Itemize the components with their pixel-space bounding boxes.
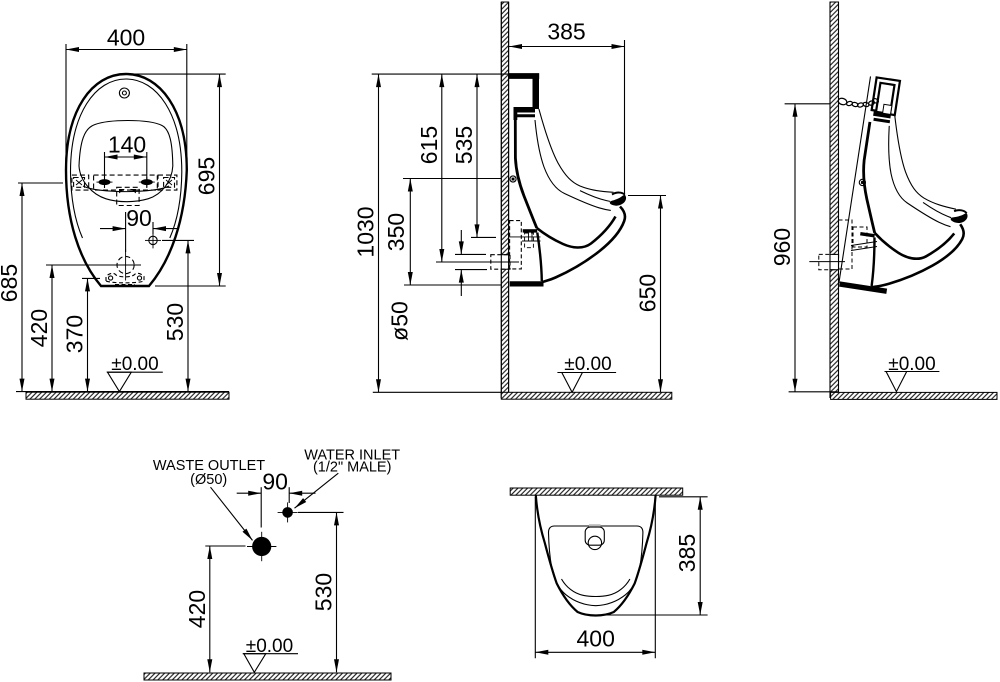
svg-text:90: 90 — [262, 469, 288, 495]
svg-text:960: 960 — [769, 228, 795, 266]
svg-text:535: 535 — [451, 126, 477, 164]
svg-text:(Ø50): (Ø50) — [190, 472, 227, 488]
svg-text:385: 385 — [547, 19, 585, 45]
svg-text:385: 385 — [674, 534, 700, 572]
svg-text:370: 370 — [62, 315, 88, 353]
svg-text:1030: 1030 — [353, 206, 379, 257]
svg-text:(1/2" MALE): (1/2" MALE) — [313, 460, 391, 476]
svg-text:ø50: ø50 — [387, 301, 413, 341]
svg-text:90: 90 — [126, 205, 152, 231]
svg-text:420: 420 — [184, 590, 210, 628]
svg-text:420: 420 — [26, 309, 52, 347]
svg-text:530: 530 — [311, 573, 337, 611]
svg-text:650: 650 — [635, 274, 661, 312]
svg-text:615: 615 — [416, 126, 442, 164]
svg-text:695: 695 — [194, 157, 220, 195]
svg-text:530: 530 — [162, 303, 188, 341]
svg-text:685: 685 — [0, 264, 22, 302]
svg-text:350: 350 — [383, 213, 409, 251]
svg-text:400: 400 — [107, 25, 145, 51]
svg-text:±0.00: ±0.00 — [564, 354, 611, 375]
svg-text:140: 140 — [108, 132, 146, 158]
svg-text:400: 400 — [577, 626, 615, 652]
